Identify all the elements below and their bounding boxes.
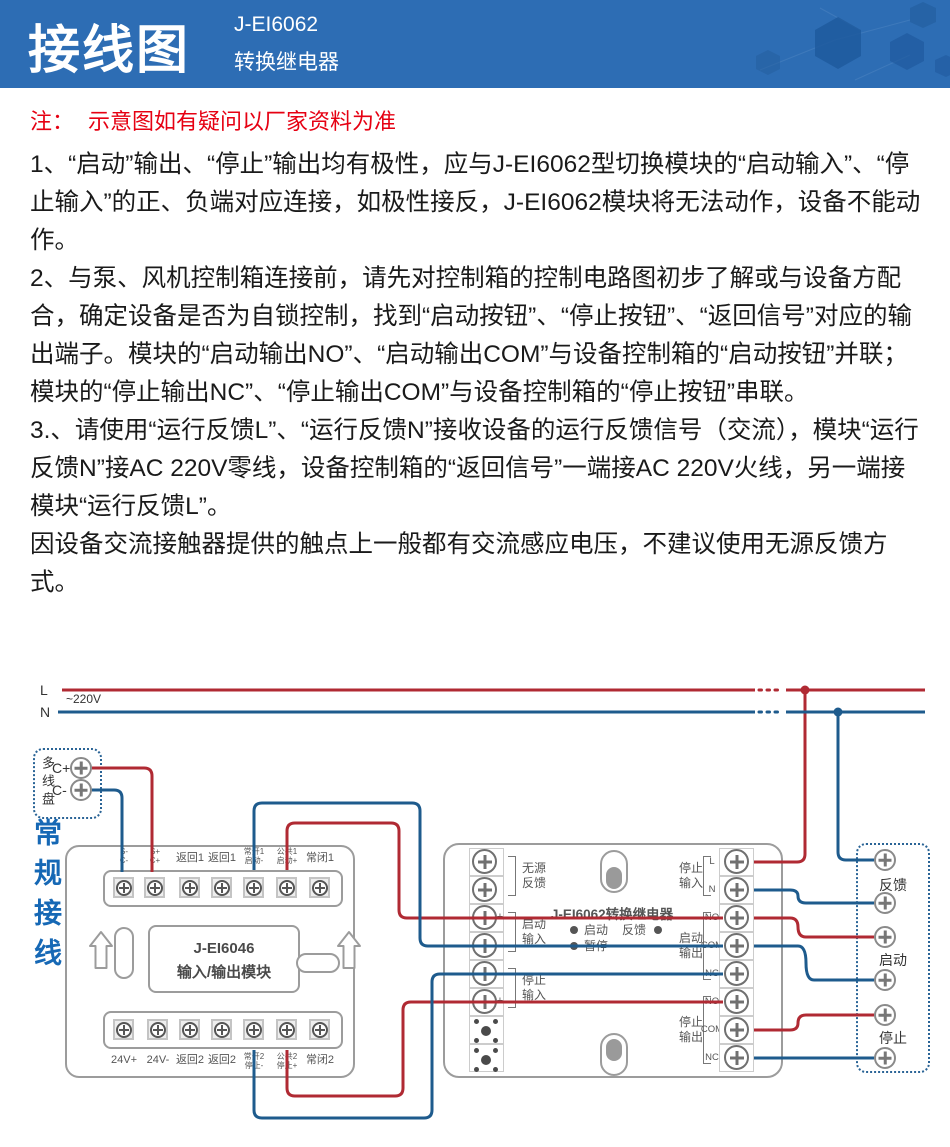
terminal-screw-icon: [309, 1019, 330, 1040]
conventional-wiring-label: 常规接线: [26, 818, 66, 978]
terminal-screw-icon: [472, 989, 497, 1014]
start-led-label: 启动: [584, 921, 608, 938]
power-line-n-label: N: [40, 704, 50, 720]
terminal-screw-icon: [70, 757, 92, 779]
terminal-screw-icon: [211, 877, 232, 898]
wiring-diagram: L N ~220V 多线盘 C+ C- 常规接线 S-C- S+C+ 返回1 返…: [0, 670, 950, 1147]
note-text: 示意图如有疑问以厂家资料为准: [88, 109, 396, 134]
mounting-keyhole: [600, 1033, 628, 1076]
io-module-name: 输入/输出模块: [150, 961, 298, 982]
junction-dot: [801, 686, 810, 695]
terminal-group-bracket: [508, 968, 516, 1008]
mounting-keyhole: [600, 850, 628, 893]
neutral-drop-wire: [838, 712, 874, 860]
terminal-screw-icon: [147, 1019, 168, 1040]
live-drop-wire: [754, 690, 805, 862]
terminal-screw-icon: [724, 961, 749, 986]
model-type: 转换继电器: [234, 46, 339, 76]
terminal-screw-icon: [243, 877, 264, 898]
start-led-icon: [570, 926, 578, 934]
terminal-label: 常闭1: [298, 852, 342, 865]
instruction-paragraph-3: 3.、请使用“运行反馈L”、“运行反馈N”接收设备的运行反馈信号（交流），模块“…: [30, 412, 925, 526]
decorative-cubes: [610, 0, 950, 88]
power-line-l-label: L: [40, 682, 48, 698]
terminal-group-label: 无源反馈: [519, 861, 549, 891]
terminal-screw-icon: [724, 877, 749, 902]
feedback-led-icon: [654, 926, 662, 934]
terminal-screw-icon: [874, 969, 896, 991]
up-arrow-icon: [88, 930, 114, 970]
terminal-screw-icon: [70, 779, 92, 801]
mounting-slot: [296, 953, 340, 973]
terminal-screw-icon: [472, 849, 497, 874]
terminal-screw-icon: [309, 877, 330, 898]
relay-module-title: J-EI6062转换继电器: [522, 903, 702, 923]
terminal-screw-icon: [113, 877, 134, 898]
terminal-group-bracket: [508, 912, 516, 952]
terminal-screw-icon: [724, 989, 749, 1014]
stop-label: 停止: [856, 1028, 930, 1048]
note-line: 注：示意图如有疑问以厂家资料为准: [30, 104, 396, 136]
terminal-screw-icon: [724, 1045, 749, 1070]
header-banner: 接线图 J-EI6062 转换继电器: [0, 0, 950, 88]
terminal-group-bracket: [508, 856, 516, 896]
terminal-screw-icon: [472, 961, 497, 986]
terminal-screw-icon: [179, 877, 200, 898]
instruction-paragraph-1: 1、“启动”输出、“停止”输出均有极性，应与J-EI6062型切换模块的“启动输…: [30, 146, 925, 260]
terminal-screw-icon: [874, 1047, 896, 1069]
feedback-label: 反馈: [856, 875, 930, 895]
io-module-model: J-EI6046: [150, 940, 298, 957]
pause-led-label: 暂停: [584, 937, 608, 954]
terminal-screw-icon: [472, 877, 497, 902]
instruction-paragraph-2: 2、与泵、风机控制箱连接前，请先对控制箱的控制电路图初步了解或与设备方配合，确定…: [30, 260, 925, 412]
model-number: J-EI6062: [234, 13, 318, 37]
feedback-led-label: 反馈: [622, 921, 646, 938]
terminal-screw-icon: [472, 933, 497, 958]
terminal-screw-icon: [724, 905, 749, 930]
page-title: 接线图: [28, 8, 190, 83]
terminal-c-plus-label: C+: [52, 760, 70, 776]
pause-led-icon: [570, 942, 578, 950]
instructions: 1、“启动”输出、“停止”输出均有极性，应与J-EI6062型切换模块的“启动输…: [30, 146, 925, 602]
terminal-label: 常闭2: [298, 1054, 342, 1067]
terminal-screw-icon: [243, 1019, 264, 1040]
terminal-screw-icon: [211, 1019, 232, 1040]
terminal-screw-icon: [144, 877, 165, 898]
mounting-slot: [114, 927, 134, 979]
terminal-group-label: 停止输入: [519, 973, 549, 1003]
terminal-c-minus-label: C-: [52, 782, 67, 798]
terminal-screw-icon: [179, 1019, 200, 1040]
terminal-screw-icon: [874, 1004, 896, 1026]
address-switch-icon: [473, 1047, 499, 1073]
junction-dot: [834, 708, 843, 717]
voltage-label: ~220V: [66, 692, 101, 706]
io-module-nameplate: J-EI6046 输入/输出模块: [148, 925, 300, 993]
terminal-screw-icon: [874, 926, 896, 948]
terminal-screw-icon: [472, 905, 497, 930]
terminal-screw-icon: [724, 933, 749, 958]
address-switch-icon: [473, 1018, 499, 1044]
start-label: 启动: [856, 950, 930, 970]
instruction-paragraph-4: 因设备交流接触器提供的触点上一般都有交流感应电压，不建议使用无源反馈方式。: [30, 526, 925, 602]
terminal-screw-icon: [276, 1019, 297, 1040]
terminal-screw-icon: [874, 892, 896, 914]
note-label: 注：: [30, 109, 74, 134]
terminal-screw-icon: [874, 849, 896, 871]
terminal-screw-icon: [724, 849, 749, 874]
terminal-screw-icon: [276, 877, 297, 898]
terminal-screw-icon: [724, 1017, 749, 1042]
terminal-screw-icon: [113, 1019, 134, 1040]
